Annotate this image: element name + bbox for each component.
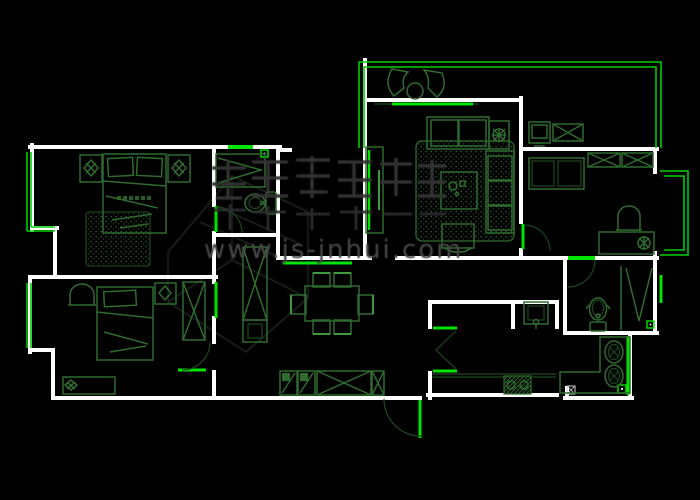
floor-plan-drawing: www.js-jnhui.com <box>0 0 700 500</box>
watermark-url: www.js-jnhui.com <box>204 235 464 265</box>
cad-canvas: www.js-jnhui.com <box>0 0 700 500</box>
gas-stove <box>504 376 531 394</box>
rug <box>86 212 150 266</box>
